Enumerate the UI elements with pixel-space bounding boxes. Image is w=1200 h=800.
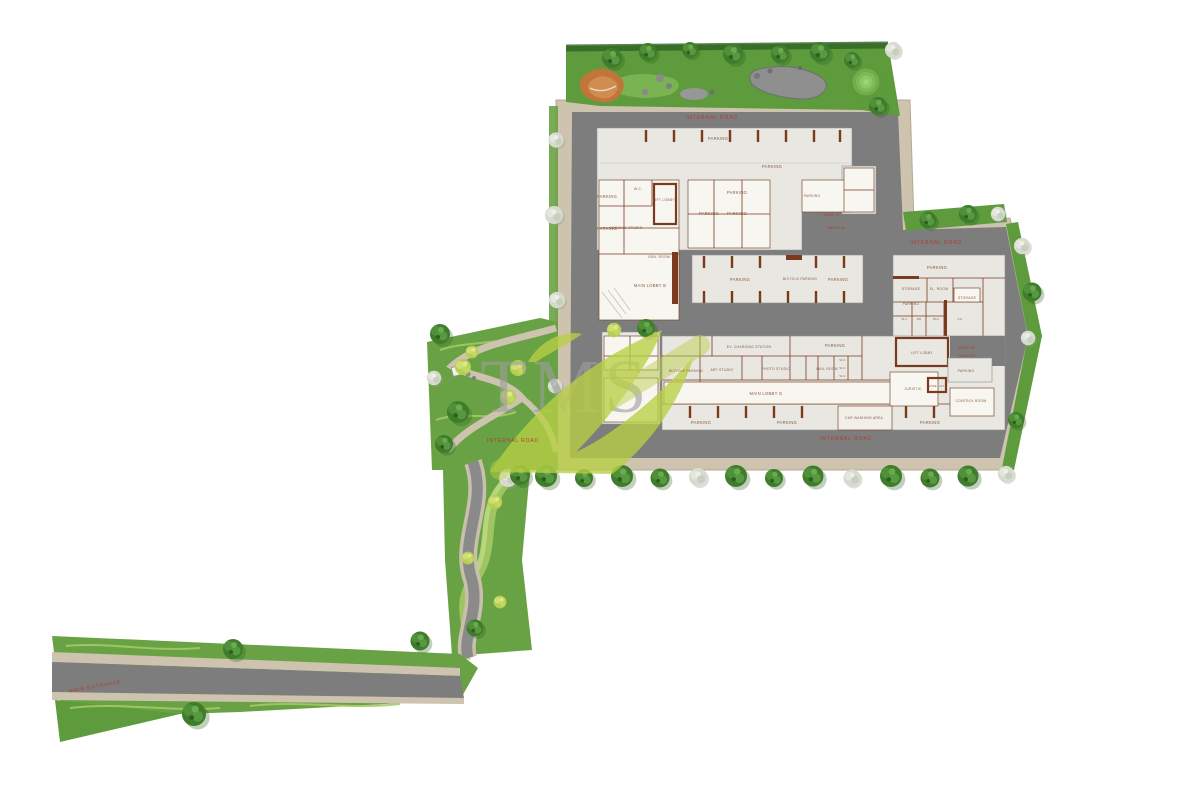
pond-small xyxy=(680,88,708,100)
site-plan-drawing: TMS INTERNAL ROAD INTERNAL ROAD INTERNAL… xyxy=(0,0,1200,800)
room-label: W.C. xyxy=(839,366,846,370)
road-label: INTERNAL ROAD xyxy=(686,115,738,121)
room-label: GEN. ROOM xyxy=(648,255,670,259)
site-plan-page: TMS INTERNAL ROAD INTERNAL ROAD INTERNAL… xyxy=(0,0,1200,800)
room-label: MAIL ROOM xyxy=(816,367,838,371)
room-label: PARKING xyxy=(828,277,848,282)
room-label: LIFT LOBBY xyxy=(911,351,933,355)
room-label: STORAGE xyxy=(958,296,977,300)
room-label: PAU xyxy=(933,317,939,321)
room-label: PARKING xyxy=(920,420,940,425)
room-label: W.C. xyxy=(839,358,846,362)
ramp-label: RAMP UP xyxy=(824,213,841,217)
room-label: PARKING xyxy=(708,136,728,141)
room-label: PHOTO STUDIO xyxy=(762,367,791,371)
room-label: PARKING xyxy=(730,277,750,282)
room-label: ART STUDIO xyxy=(711,368,734,372)
room-label: CONTROL ROOM xyxy=(956,399,987,403)
room-label: PARKING xyxy=(804,194,821,198)
utility-block xyxy=(893,255,1005,343)
ramp-label: RAMP DN xyxy=(828,226,845,230)
road-label: INTERNAL ROAD xyxy=(487,438,539,444)
room-label: PARKING xyxy=(777,420,797,425)
room-label: MAIN LOBBY B xyxy=(634,283,666,288)
room-label: PARKING xyxy=(727,211,747,216)
room-label: PARKING xyxy=(691,420,711,425)
park-corridor xyxy=(443,462,532,658)
room-label: PARKING xyxy=(597,194,617,199)
room-label: PARKING xyxy=(699,211,719,216)
room-label: CAR WASHING AREA xyxy=(845,416,884,420)
room-label: EV. CHARGING STATION xyxy=(727,345,772,349)
room-label: MAIN LOBBY G xyxy=(750,391,783,396)
room-label: FIRE LIFT xyxy=(929,384,944,388)
room-label: PARKING xyxy=(958,369,975,373)
main-lobby-g-corridor xyxy=(664,382,902,404)
road-label: INTERNAL ROAD xyxy=(910,240,962,246)
room-label: PARKING xyxy=(762,164,782,169)
room-label: OIL xyxy=(957,317,962,321)
room-label: PARKING xyxy=(927,265,947,270)
room-label: LIFT LOBBY xyxy=(653,198,675,202)
entrance-road-band xyxy=(52,636,478,742)
room-label: COOKING STUDIO xyxy=(609,226,642,230)
room-label: EL. ROOM xyxy=(930,287,949,291)
room-label: W.C. xyxy=(901,317,908,321)
room-label: BICYCLE PARKING xyxy=(669,369,703,373)
room-label: PARKING xyxy=(727,190,747,195)
ramp-label: RAMP DN xyxy=(959,354,976,358)
ramp-label: RAMP UP xyxy=(959,346,976,350)
room-label: BICYCLE PARKING xyxy=(783,277,817,281)
room-label: PARKING xyxy=(903,302,920,306)
room-label: JURISTIC xyxy=(904,387,922,391)
room-label: STORAGE xyxy=(902,287,921,291)
road-label: INTERNAL ROAD xyxy=(820,436,872,442)
room-label: DB xyxy=(917,317,921,321)
room-label: PARKING xyxy=(825,343,845,348)
room-label: W.C. xyxy=(634,187,642,191)
room-label: W.C. xyxy=(839,374,846,378)
